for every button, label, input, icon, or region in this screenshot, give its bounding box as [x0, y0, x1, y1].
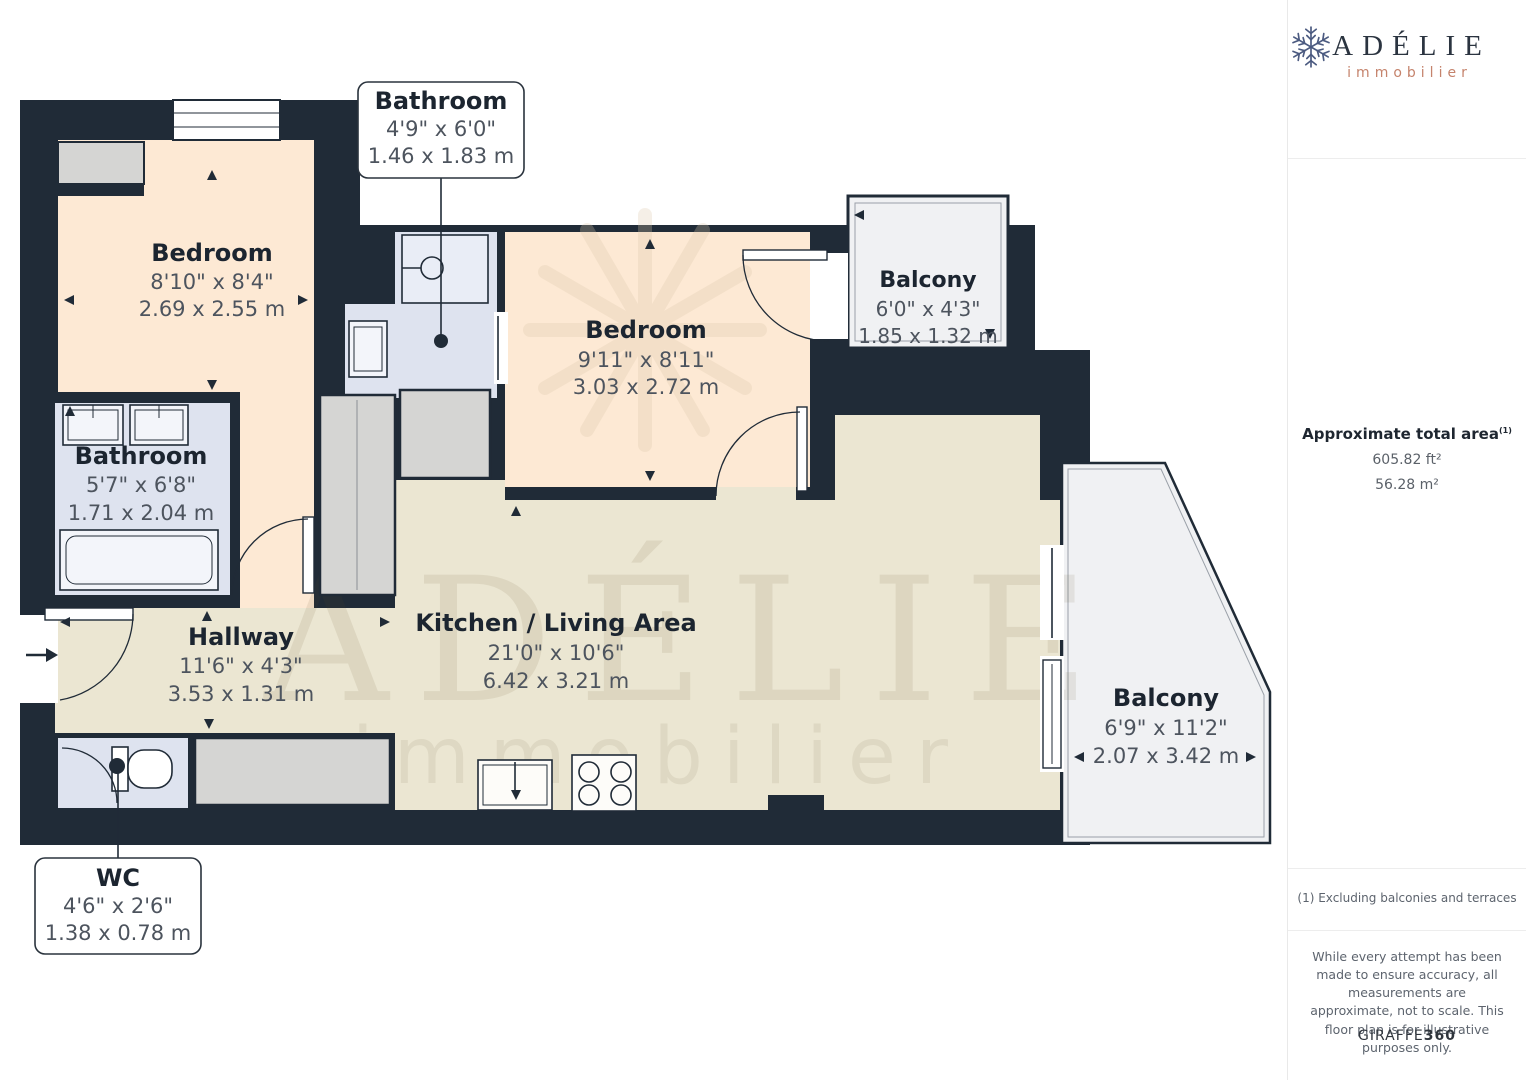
- room-metric: 1.71 x 2.04 m: [68, 501, 214, 525]
- giraffe360-credit: GIRAFFE360: [1288, 1028, 1526, 1044]
- washbasin-top-bathroom: [349, 321, 387, 377]
- wall-notch-topright: [1035, 225, 1090, 350]
- callout-name: Bathroom: [375, 87, 508, 115]
- total-area-label-text: Approximate total area: [1302, 425, 1499, 443]
- room-label-hallway: Hallway 11'6" x 4'3" 3.53 x 1.31 m: [168, 623, 314, 706]
- credit-brand: GIRAFFE: [1358, 1028, 1424, 1044]
- room-imperial: 11'6" x 4'3": [179, 654, 302, 678]
- room-label-bathroom-left: Bathroom 5'7" x 6'8" 1.71 x 2.04 m: [68, 442, 214, 525]
- room-imperial: 5'7" x 6'8": [86, 473, 196, 497]
- snowflake-icon: [1288, 24, 1334, 70]
- bedroom2-door-opening: [716, 487, 796, 500]
- wardrobe-bedroom1-base: [58, 184, 144, 196]
- entry-opening: [20, 615, 58, 703]
- watermark-tagline-text: immobilier: [352, 712, 968, 802]
- room-metric: 3.53 x 1.31 m: [168, 682, 314, 706]
- balcony-top-door-leaf: [743, 250, 827, 260]
- kitchen-wall-stub: [768, 795, 824, 810]
- room-imperial: 21'0" x 10'6": [488, 641, 625, 665]
- room-label-bedroom1: Bedroom 8'10" x 8'4" 2.69 x 2.55 m: [139, 239, 285, 321]
- room-metric: 6.42 x 3.21 m: [483, 669, 629, 693]
- wardrobe-kitchen: [400, 390, 490, 478]
- bedroom2-door-leaf: [797, 407, 807, 491]
- footnote-text: (1) Excluding balconies and terraces: [1288, 891, 1526, 905]
- bedroom1-window: [173, 100, 280, 140]
- room-metric: 2.69 x 2.55 m: [139, 297, 285, 321]
- room-imperial: 6'9" x 11'2": [1104, 716, 1227, 740]
- room-name: Bedroom: [585, 316, 707, 344]
- kitchen-floor-c: [835, 415, 1040, 500]
- balcony-top-door-opening: [810, 253, 848, 339]
- total-area-metric: 56.28 m²: [1288, 477, 1526, 493]
- room-label-bedroom2: Bedroom 9'11" x 8'11" 3.03 x 2.72 m: [573, 316, 719, 399]
- room-imperial: 8'10" x 8'4": [150, 270, 273, 294]
- total-area-block: Approximate total area(1) 605.82 ft² 56.…: [1288, 425, 1526, 493]
- room-metric: 3.03 x 2.72 m: [573, 375, 719, 399]
- sidebar-divider: [1288, 930, 1526, 931]
- sidebar-divider: [1288, 868, 1526, 869]
- brand-logo: ADÉLIE immobilier: [1288, 24, 1526, 81]
- info-sidebar: ADÉLIE immobilier Approximate total area…: [1287, 0, 1526, 1080]
- entry-door-leaf: [45, 608, 133, 620]
- bathtub: [60, 530, 218, 590]
- balcony-top-side-wall: [1008, 240, 1034, 350]
- room-name: Balcony: [1113, 684, 1220, 712]
- wc-leader-dot: [109, 758, 125, 774]
- callout-imperial: 4'6" x 2'6": [63, 894, 173, 918]
- credit-suffix: 360: [1424, 1028, 1456, 1044]
- callout-bathroom-top: Bathroom 4'9" x 6'0" 1.46 x 1.83 m: [358, 82, 524, 178]
- room-name: Bedroom: [151, 239, 273, 267]
- callout-imperial: 4'9" x 6'0": [386, 117, 496, 141]
- bathroom-callout-dot: [434, 334, 448, 348]
- room-metric: 1.85 x 1.32 m: [858, 324, 997, 348]
- callout-wc: WC 4'6" x 2'6" 1.38 x 0.78 m: [35, 858, 201, 954]
- callout-metric: 1.46 x 1.83 m: [368, 144, 514, 168]
- bathroom-top-door-opening: [494, 312, 508, 384]
- callout-metric: 1.38 x 0.78 m: [45, 921, 191, 945]
- floorplan-page: ADÉLIE immobilier: [0, 0, 1526, 1080]
- room-label-balcony-right: Balcony 6'9" x 11'2" 2.07 x 3.42 m: [1093, 684, 1239, 768]
- room-name: Balcony: [879, 268, 976, 293]
- footnote-marker: (1): [1499, 426, 1512, 435]
- toilet-bowl: [128, 750, 172, 788]
- wardrobe-hallway: [195, 738, 390, 805]
- room-name: Hallway: [188, 623, 294, 651]
- room-imperial: 6'0" x 4'3": [876, 297, 981, 321]
- corridor-door-leaf: [303, 517, 314, 593]
- total-area-imperial: 605.82 ft²: [1288, 452, 1526, 468]
- room-name: Bathroom: [75, 442, 208, 470]
- room-metric: 2.07 x 3.42 m: [1093, 744, 1239, 768]
- shower-tray: [402, 235, 488, 303]
- bathroom-top-wall-notch: [345, 232, 395, 304]
- total-area-label: Approximate total area(1): [1288, 425, 1526, 443]
- room-imperial: 9'11" x 8'11": [578, 348, 715, 372]
- sidebar-divider: [1288, 158, 1526, 159]
- callout-name: WC: [96, 864, 140, 892]
- room-name: Kitchen / Living Area: [415, 609, 696, 637]
- wardrobe-bedroom1: [58, 142, 144, 184]
